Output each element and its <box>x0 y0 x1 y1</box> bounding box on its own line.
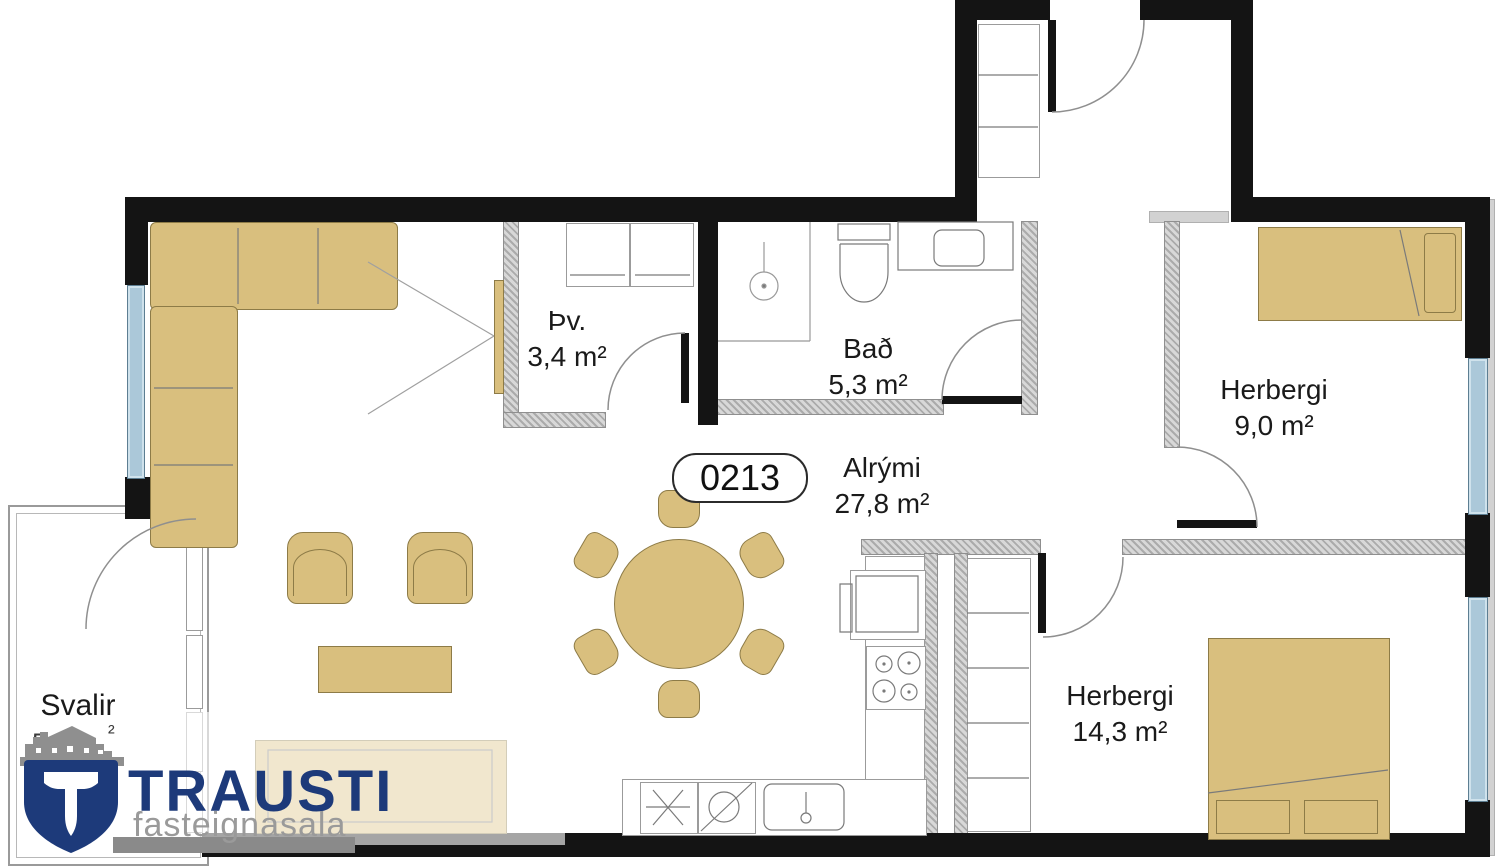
room-label-bedroom-small: Herbergi 9,0 m² <box>1194 372 1354 444</box>
wall-right-upper <box>1465 197 1490 358</box>
wall-right-middle <box>1465 513 1490 597</box>
window-bedroom-large <box>1468 597 1488 802</box>
dining-chair <box>734 528 788 583</box>
door-leaf-laundry <box>681 333 689 403</box>
room-label-living: Alrými 27,8 m² <box>802 450 962 522</box>
wall-left-upper <box>125 197 148 285</box>
wall-top-left <box>125 197 955 222</box>
fridge <box>640 782 698 834</box>
balcony-glass-panel <box>186 635 203 709</box>
coffee-table <box>318 646 452 693</box>
window-living-left <box>127 285 145 479</box>
dining-table <box>614 539 744 669</box>
door-leaf-bath <box>942 396 1022 404</box>
room-name: Alrými <box>802 450 962 486</box>
floor-plan: Þv. 3,4 m² Bað 5,3 m² Alrými 27,8 m² Her… <box>0 0 1495 867</box>
room-area: 14,3 m² <box>1040 714 1200 750</box>
room-label-balcony: Svalir <box>18 688 138 724</box>
balcony-area-fragment-left: 5 <box>32 728 47 759</box>
dining-chair <box>658 680 700 718</box>
wall-bath-right <box>1022 222 1037 414</box>
room-label-bathroom: Bað 5,3 m² <box>798 331 938 403</box>
wall-entry-right <box>1231 0 1253 222</box>
room-area: 3,4 m² <box>497 339 637 375</box>
room-area: 5,3 m² <box>798 367 938 403</box>
wall-kitchen-top <box>862 540 1040 554</box>
stove <box>866 646 926 710</box>
room-area: 9,0 m² <box>1194 408 1354 444</box>
wall-laundry-bath-divider <box>698 222 718 425</box>
wall-laundry-bottom <box>504 413 605 427</box>
door-leaf-bedroom-large <box>1038 553 1046 633</box>
wall-chase-right <box>955 554 967 834</box>
room-name: Herbergi <box>1040 678 1200 714</box>
dryer <box>630 223 694 287</box>
vanity-sink-icon <box>898 222 1013 270</box>
washer <box>566 223 630 287</box>
entry-closet <box>978 24 1040 178</box>
dining-chair <box>570 623 624 678</box>
armchair <box>407 532 473 604</box>
toilet-icon <box>838 224 890 302</box>
oven <box>850 570 926 640</box>
logo-tagline-text: fasteignasala <box>133 806 346 845</box>
unit-number-badge: 0213 <box>672 453 808 503</box>
wall-entry-left <box>955 0 977 222</box>
wardrobe <box>967 558 1031 832</box>
double-bed-pillow <box>1304 800 1378 834</box>
door-leaf-entry <box>1048 20 1056 112</box>
corner-sofa-horizontal <box>150 222 398 310</box>
dining-chair <box>570 528 624 583</box>
dishwasher <box>698 782 756 834</box>
single-bed-pillow <box>1424 233 1456 313</box>
room-name: Svalir <box>18 688 138 724</box>
room-name: Bað <box>798 331 938 367</box>
shower-icon <box>718 222 810 341</box>
door-leaf-bedroom-small <box>1177 520 1257 528</box>
wall-hall-bottom <box>1123 540 1465 554</box>
room-name: Herbergi <box>1194 372 1354 408</box>
armchair <box>287 532 353 604</box>
exterior-trim-entry <box>1150 212 1228 222</box>
window-bedroom-small <box>1468 358 1488 515</box>
double-bed-pillow <box>1216 800 1290 834</box>
balcony-area-fragment-right: ² <box>108 722 115 745</box>
corner-sofa-vertical <box>150 306 238 548</box>
wall-entry-top-left <box>955 0 1050 20</box>
room-label-bedroom-large: Herbergi 14,3 m² <box>1040 678 1200 750</box>
dining-chair <box>734 623 788 678</box>
room-name: Þv. <box>497 303 637 339</box>
wall-top-right <box>1253 197 1465 222</box>
wall-bedroom-small-left <box>1165 222 1179 447</box>
room-label-laundry: Þv. 3,4 m² <box>497 303 637 375</box>
room-area: 27,8 m² <box>802 486 962 522</box>
